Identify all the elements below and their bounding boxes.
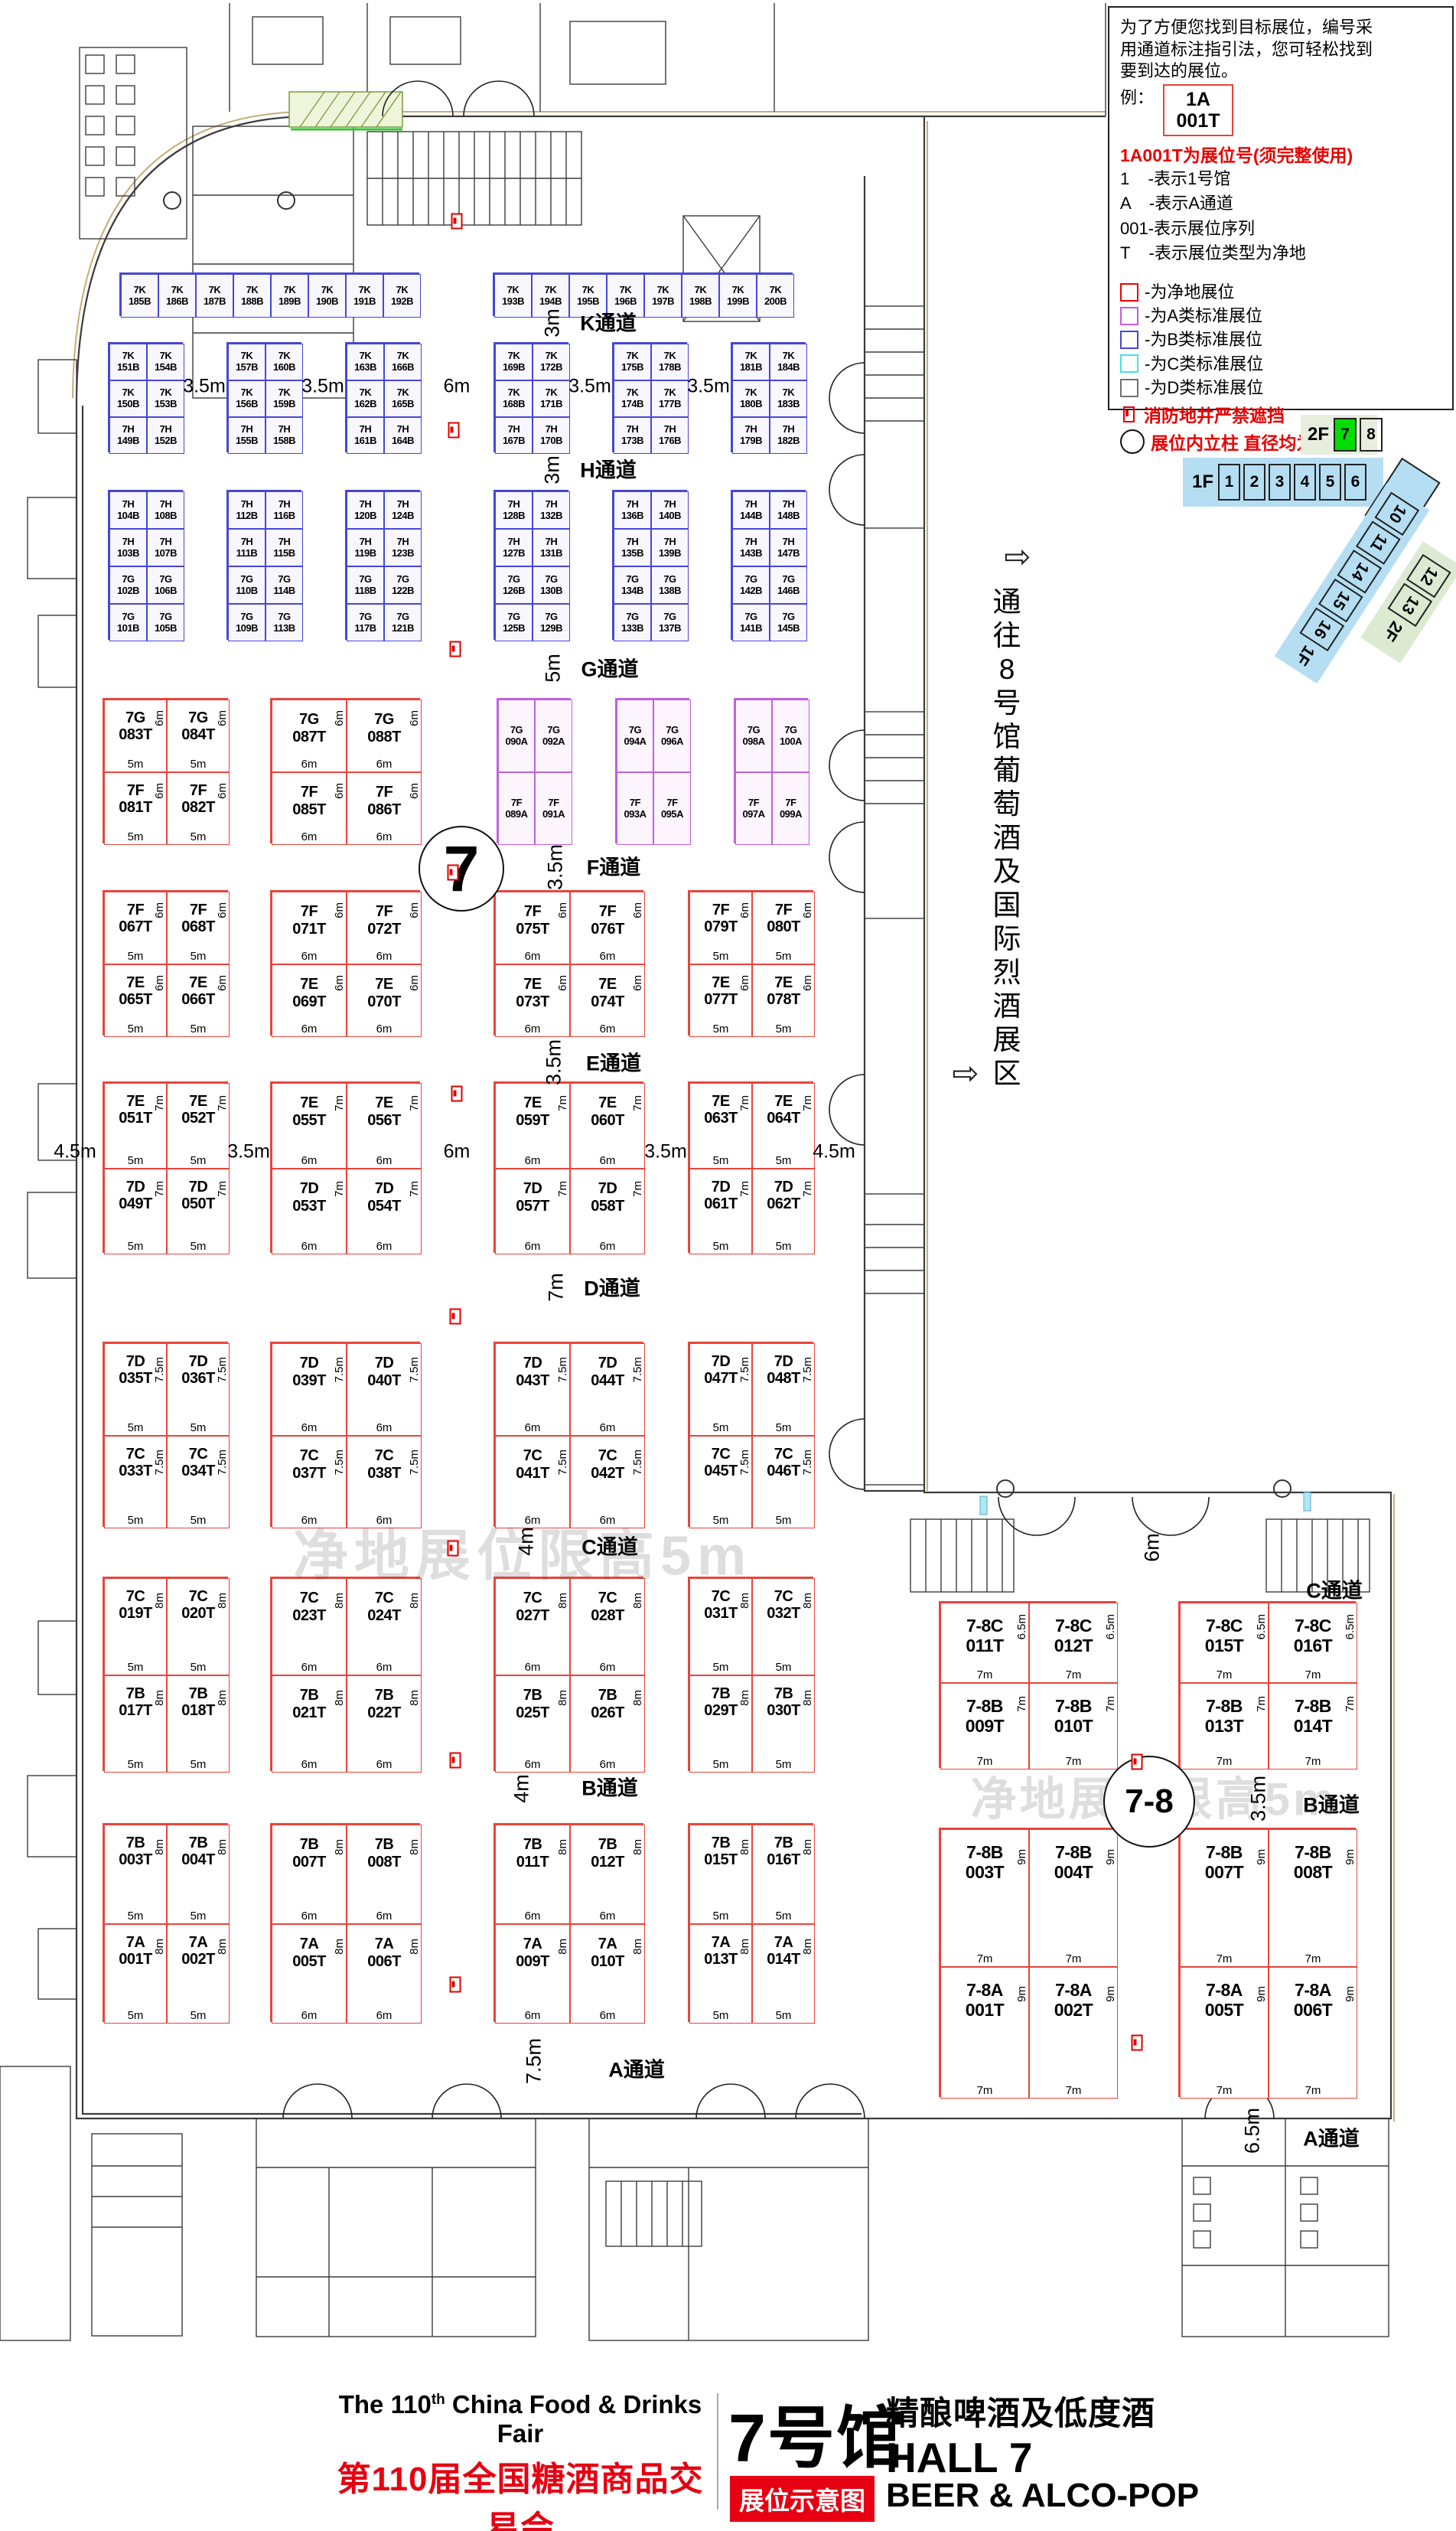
booth-block: 7K 157B7K 160B7K 156B7K 159B7H 155B7H 15…	[226, 342, 301, 452]
booth-id: 7C 042T	[591, 1447, 624, 1482]
booth: 7C 027T8m6m	[495, 1578, 570, 1675]
booth: 7B 017T8m5m	[104, 1675, 167, 1773]
gap-dimension-label: 3.5m	[568, 376, 611, 398]
booth-width-label: 5m	[168, 1421, 229, 1434]
booth-depth-label: 8m	[556, 1690, 569, 1706]
booth-block: 7G 087T6m6m7G 088T6m6m7F 085T6m6m7F 086T…	[270, 698, 420, 843]
booth-width-label: 5m	[690, 1023, 751, 1036]
booth: 7K 159B	[265, 380, 303, 417]
booth: 7K 193B	[494, 274, 532, 318]
booth-depth-label: 8m	[631, 1939, 644, 1955]
booth-id: 7H 161B	[354, 424, 376, 446]
booth-id: 7K 165B	[392, 387, 414, 409]
booth: 7B 015T8m5m	[689, 1825, 752, 1924]
booth-width-label: 5m	[690, 950, 751, 963]
booth-id: 7D 040T	[367, 1355, 401, 1389]
booth: 7G 084T6m5m	[167, 700, 230, 772]
booth-id: 7C 023T	[292, 1590, 326, 1624]
booth-id: 7A 010T	[591, 1936, 624, 1970]
booth: 7-8B 004T9m7m	[1029, 1829, 1118, 1967]
booth-id: 7K 159B	[273, 387, 295, 409]
booth-id: 7E 074T	[591, 976, 624, 1010]
booth-id: 7B 007T	[292, 1836, 326, 1871]
booth-id: 7H 158B	[273, 424, 295, 446]
booth: 7K 157B	[228, 344, 265, 380]
booth-depth-label: 6m	[216, 975, 229, 991]
booth: 7K 175B	[614, 344, 651, 380]
booth-id: 7D 057T	[516, 1180, 549, 1215]
booth-width-label: 6m	[347, 830, 421, 843]
booth: 7G 122B	[384, 566, 422, 604]
booth-width-label: 6m	[347, 1421, 421, 1434]
aisle-name-label: H通道	[580, 454, 637, 484]
booth-id: 7F 072T	[367, 903, 401, 938]
legend-definition-line: 001-表示展位序列	[1120, 217, 1441, 242]
booth-id: 7K 187B	[204, 285, 226, 307]
booth: 7K 191B	[346, 274, 383, 318]
booth-depth-label: 6m	[408, 902, 421, 918]
booth-width-label: 5m	[168, 1240, 229, 1253]
booth-depth-label: 8m	[333, 1690, 346, 1706]
booth-block: 7G 094A7G 096A7F 093A7F 095A	[615, 698, 689, 843]
booth-width-label: 5m	[168, 1154, 229, 1167]
booth: 7G 142B	[732, 566, 770, 604]
booth-id: 7-8A 005T	[1205, 1981, 1243, 2021]
booth-id: 7D 062T	[767, 1179, 800, 1213]
booth-depth-label: 6m	[333, 710, 346, 726]
booth: 7G 146B	[770, 566, 807, 604]
booth: 7A 006T8m6m	[347, 1924, 422, 2024]
booth: 7G 138B	[651, 566, 689, 604]
aisle-name-label: C通道	[1306, 1574, 1363, 1604]
minimap-hall-4: 4	[1294, 464, 1316, 501]
booth-width-label: 5m	[105, 1154, 166, 1167]
booth-width-label: 6m	[347, 2009, 421, 2022]
booth: 7H 176B	[651, 417, 689, 454]
pillar-icon	[1273, 1479, 1292, 1498]
booth: 7K 160B	[265, 344, 303, 380]
booth-depth-label: 7.5m	[333, 1450, 346, 1475]
booth-id: 7G 105B	[155, 612, 177, 634]
booth: 7F 085T6m6m	[272, 772, 347, 845]
booth-id: 7B 018T	[181, 1685, 215, 1720]
booth: 7G 141B	[732, 604, 770, 641]
corridor-note-char: 馆	[988, 720, 1026, 754]
booth-id: 7B 011T	[516, 1836, 549, 1871]
booth-id: 7H 124B	[392, 499, 414, 521]
booth-depth-label: 7.5m	[153, 1450, 166, 1475]
booth-block: 7H 104B7H 108B7H 103B7H 107B7G 102B7G 10…	[108, 490, 183, 640]
booth-width-label: 5m	[168, 1023, 229, 1036]
booth-width-label: 7m	[1181, 1668, 1268, 1681]
aisle-width-label: 3m	[541, 455, 565, 484]
booth-id: 7K 183B	[777, 387, 800, 409]
booth-id: 7-8B 007T	[1205, 1843, 1243, 1883]
booth: 7H 152B	[147, 417, 184, 454]
booth-id: 7G 113B	[273, 612, 295, 634]
booth: 7E 059T7m6m	[495, 1083, 570, 1169]
booth-id: 7K 186B	[166, 285, 188, 307]
booth-depth-label: 8m	[738, 1839, 751, 1855]
booth-depth-label: 7.5m	[631, 1450, 644, 1475]
booth-id: 7K 190B	[316, 285, 338, 307]
booth-depth-label: 8m	[556, 1939, 569, 1955]
booth: 7G 109B	[228, 604, 265, 641]
booth-id: 7-8C 011T	[966, 1616, 1003, 1656]
booth-width-label: 7m	[1269, 2084, 1357, 2097]
booth: 7K 200B	[757, 274, 794, 318]
booth-depth-label: 8m	[333, 1593, 346, 1609]
booth: 7G 125B	[495, 604, 533, 641]
booth: 7D 036T7.5m5m	[167, 1343, 230, 1436]
booth-id: 7H 104B	[117, 499, 139, 521]
booth: 7H 136B	[614, 491, 651, 529]
booth-depth-label: 7.5m	[556, 1357, 569, 1382]
booth-depth-label: 8m	[408, 1839, 421, 1855]
booth: 7A 010T8m6m	[570, 1924, 645, 2024]
booth-depth-label: 8m	[216, 1690, 229, 1706]
legend-booth-types: -为净地展位-为A类标准展位-为B类标准展位-为C类标准展位-为D类标准展位	[1120, 280, 1441, 400]
booth-type-swatch	[1120, 354, 1138, 373]
booth: 7E 078T6m5m	[752, 964, 815, 1037]
booth-width-label: 5m	[168, 1910, 229, 1923]
booth-depth-label: 8m	[631, 1690, 644, 1706]
booth-id: 7K 185B	[129, 285, 151, 307]
booth-depth-label: 7.5m	[738, 1450, 751, 1475]
booth-width-label: 5m	[690, 1154, 751, 1167]
booth: 7C 019T8m5m	[104, 1578, 167, 1675]
booth: 7B 016T8m5m	[752, 1825, 815, 1924]
booth-id: 7D 047T	[704, 1353, 738, 1388]
booth: 7K 177B	[651, 380, 689, 417]
booth: 7H 111B	[228, 529, 265, 566]
fire-well-icon	[448, 1541, 459, 1557]
booth-id: 7B 030T	[767, 1685, 800, 1720]
booth-type-swatch	[1120, 379, 1138, 397]
booth-width-label: 6m	[347, 758, 421, 771]
booth-block: 7K 169B7K 172B7K 168B7K 171B7H 167B7H 17…	[493, 342, 568, 452]
booth: 7H 179B	[732, 417, 770, 454]
booth-width-label: 6m	[347, 1910, 421, 1923]
booth: 7C 033T7.5m5m	[104, 1436, 167, 1528]
booth-id: 7C 038T	[367, 1447, 401, 1482]
aisle-width-label: 4m	[510, 1774, 534, 1803]
booth: 7E 055T7m6m	[272, 1083, 347, 1169]
booth: 7G 098A	[735, 700, 772, 772]
booth-id: 7K 174B	[621, 387, 643, 409]
booth: 7H 173B	[614, 417, 651, 454]
corridor-note-char: 及	[988, 855, 1026, 889]
booth-id: 7-8B 013T	[1205, 1697, 1243, 1737]
booth: 7K 171B	[533, 380, 570, 417]
booth-depth-label: 8m	[216, 1939, 229, 1955]
booth-type-label: -为净地展位	[1145, 280, 1234, 304]
booth-id: 7E 077T	[704, 974, 738, 1009]
booth-width-label: 6m	[571, 1421, 644, 1434]
booth-id: 7G 098A	[742, 725, 764, 747]
booth: 7G 113B	[265, 604, 303, 641]
booth-id: 7F 097A	[742, 797, 764, 820]
booth-id: 7B 003T	[119, 1835, 152, 1869]
aisle-name-label: B通道	[581, 1772, 638, 1802]
booth-depth-label: 7m	[216, 1181, 229, 1197]
corridor-note-char: 萄	[988, 788, 1026, 821]
booth-id: 7K 188B	[241, 285, 263, 307]
booth-id: 7G 094A	[624, 725, 646, 747]
booth-id: 7H 173B	[621, 424, 643, 446]
booth-width-label: 7m	[941, 1668, 1028, 1681]
booth-id: 7G 110B	[236, 574, 257, 596]
booth: 7D 035T7.5m5m	[104, 1343, 167, 1436]
booth-block: 7C 031T8m5m7C 032T8m5m7B 029T8m5m7B 030T…	[688, 1577, 813, 1771]
booth-id: 7C 024T	[367, 1590, 401, 1624]
aisle-width-label: 3m	[541, 308, 565, 338]
booth-block: 7D 035T7.5m5m7D 036T7.5m5m7C 033T7.5m5m7…	[103, 1342, 228, 1527]
booth-type-label: -为A类标准展位	[1145, 304, 1262, 328]
booth: 7-8C 015T6.5m7m	[1180, 1603, 1269, 1683]
booth-width-label: 6m	[272, 1661, 346, 1674]
booth-depth-label: 8m	[631, 1593, 644, 1609]
booth: 7H 132B	[533, 491, 570, 529]
booth-id: 7H 119B	[354, 537, 376, 559]
booth: 7H 148B	[770, 491, 807, 529]
booth: 7E 069T6m6m	[272, 964, 347, 1037]
booth: 7E 064T7m5m	[752, 1083, 815, 1169]
booth: 7G 100A	[772, 700, 809, 772]
booth-width-label: 5m	[168, 1661, 229, 1674]
booth-id: 7H 164B	[392, 424, 414, 446]
corridor-note-char: 展	[988, 1023, 1026, 1057]
booth: 7E 051T7m5m	[104, 1083, 167, 1169]
booth-block: 7K 151B7K 154B7K 150B7K 153B7H 149B7H 15…	[108, 342, 183, 452]
booth: 7C 032T8m5m	[752, 1578, 815, 1675]
booth: 7E 070T6m6m	[347, 964, 422, 1037]
booth-width-label: 6m	[347, 1661, 421, 1674]
booth-depth-label: 7.5m	[801, 1450, 814, 1475]
aisle-width-label: 5m	[542, 654, 565, 683]
booth: 7F 082T6m5m	[167, 772, 230, 845]
booth-id: 7C 033T	[119, 1446, 152, 1480]
booth-id: 7A 013T	[704, 1934, 738, 1968]
booth-id: 7K 177B	[659, 387, 681, 409]
booth: 7F 089A	[498, 772, 535, 845]
booth-width-label: 5m	[753, 2009, 814, 2022]
minimap-hall-2: 2	[1243, 464, 1265, 501]
legend-intro: 为了方便您找到目标展位，编号采 用通道标注指引法，您可轻松找到 要到达的展位。	[1120, 17, 1441, 83]
fire-well-icon	[450, 1753, 461, 1769]
gap-dimension-label: 4.5m	[813, 1141, 855, 1163]
booth-id: 7G 133B	[621, 612, 643, 634]
booth: 7E 063T7m5m	[689, 1083, 752, 1169]
booth: 7E 052T7m5m	[167, 1083, 230, 1169]
hall-locator-minimap: 2F 78 1F 123456 9 10111415161F 12132F	[1178, 413, 1455, 689]
legend-example-label: 例：	[1120, 84, 1154, 109]
booth-depth-label: 7m	[153, 1095, 166, 1111]
booth-id: 7F 075T	[516, 903, 549, 938]
booth: 7G 118B	[347, 566, 384, 604]
booth: 7D 061T7m5m	[689, 1169, 752, 1254]
booth-id: 7K 197B	[652, 285, 674, 307]
booth-id: 7K 171B	[540, 387, 562, 409]
booth: 7B 029T8m5m	[689, 1675, 752, 1773]
booth-id: 7B 026T	[591, 1687, 624, 1721]
booth-depth-label: 7m	[738, 1095, 751, 1111]
booth-depth-label: 6m	[333, 783, 346, 799]
booth-width-label: 6m	[272, 1758, 346, 1771]
booth-block: 7D 047T7.5m5m7D 048T7.5m5m7C 045T7.5m5m7…	[688, 1342, 813, 1527]
booth: 7K 178B	[651, 344, 689, 380]
legend-sample-booth: 1A 001T	[1163, 84, 1233, 136]
booth: 7G 121B	[384, 604, 422, 641]
booth-id: 7C 031T	[704, 1588, 738, 1623]
minimap-hall-7: 7	[1334, 418, 1357, 452]
booth: 7A 005T8m6m	[272, 1924, 347, 2024]
booth-id: 7A 009T	[516, 1936, 549, 1970]
booth-block: 7C 019T8m5m7C 020T8m5m7B 017T8m5m7B 018T…	[103, 1577, 228, 1771]
booth: 7C 046T7.5m5m	[752, 1436, 815, 1528]
booth: 7B 022T8m6m	[347, 1675, 422, 1773]
booth: 7F 081T6m5m	[104, 772, 167, 845]
booth-width-label: 5m	[753, 1910, 814, 1923]
booth-depth-label: 7m	[408, 1181, 421, 1197]
booth-id: 7H 179B	[740, 424, 762, 446]
booth-depth-label: 9m	[1255, 1849, 1268, 1865]
booth-width-label: 6m	[347, 1154, 421, 1167]
legend-sample-line1: 1A	[1166, 89, 1230, 110]
booth-id: 7G 142B	[740, 574, 762, 596]
booth-depth-label: 8m	[216, 1593, 229, 1609]
booth: 7-8B 009T7m7m	[940, 1683, 1029, 1769]
booth-id: 7-8B 004T	[1054, 1843, 1093, 1883]
booth-depth-label: 9m	[1104, 1986, 1117, 2002]
booth-width-label: 7m	[1030, 1952, 1117, 1965]
booth-depth-label: 8m	[408, 1939, 421, 1955]
booth: 7D 050T7m5m	[167, 1169, 230, 1254]
booth-width-label: 6m	[571, 1910, 644, 1923]
booth-id: 7E 078T	[767, 974, 800, 1009]
booth-id: 7E 069T	[292, 976, 326, 1010]
booth-block: 7F 067T6m5m7F 068T6m5m7E 065T6m5m7E 066T…	[103, 890, 228, 1036]
aisle-name-label: A通道	[1303, 2122, 1360, 2152]
booth: 7K 197B	[644, 274, 682, 318]
booth-block: 7D 043T7.5m6m7D 044T7.5m6m7C 041T7.5m6m7…	[493, 1342, 643, 1527]
fire-well-icon	[451, 1086, 463, 1102]
booth-depth-label: 7.5m	[801, 1357, 814, 1382]
booth-width-label: 6m	[571, 1240, 644, 1253]
booth-id: 7E 060T	[591, 1094, 624, 1129]
title-divider	[717, 2393, 718, 2510]
booth-id: 7F 089A	[505, 797, 527, 820]
booth: 7-8A 005T9m7m	[1180, 1967, 1269, 2099]
booth-id: 7C 032T	[767, 1588, 800, 1623]
booth: 7D 043T7.5m6m	[495, 1343, 570, 1436]
booth-id: 7H 123B	[392, 537, 414, 559]
booth-id: 7F 093A	[624, 797, 646, 820]
booth: 7D 048T7.5m5m	[752, 1343, 815, 1436]
fire-well-icon	[451, 214, 463, 230]
booth: 7-8A 002T9m7m	[1029, 1967, 1118, 2099]
booth-depth-label: 8m	[631, 1839, 644, 1855]
booth-depth-label: 7m	[153, 1181, 166, 1197]
booth-depth-label: 6m	[153, 902, 166, 918]
booth: 7K 151B	[109, 344, 147, 380]
booth-id: 7-8A 002T	[1054, 1981, 1093, 2021]
booth-depth-label: 7m	[801, 1181, 814, 1197]
booth-id: 7K 184B	[777, 351, 800, 373]
booth: 7F 075T6m6m	[495, 892, 570, 964]
booth: 7F 095A	[653, 772, 691, 845]
booth-id: 7K 154B	[155, 351, 177, 373]
booth-width-label: 5m	[105, 2009, 166, 2022]
minimap-1f-label: 1F	[1192, 471, 1213, 493]
booth-width-label: 5m	[690, 1240, 751, 1253]
booth: 7K 180B	[732, 380, 770, 417]
booth-depth-label: 8m	[153, 1839, 166, 1855]
booth-depth-label: 7m	[631, 1181, 644, 1197]
booth-id: 7-8B 009T	[966, 1697, 1004, 1737]
booth-id: 7B 008T	[367, 1836, 401, 1871]
booth-id: 7H 120B	[354, 499, 376, 521]
booth-id: 7E 052T	[181, 1093, 215, 1127]
booth-id: 7C 046T	[767, 1446, 800, 1480]
fire-well-icon	[450, 641, 461, 657]
booth-depth-label: 8m	[153, 1690, 166, 1706]
booth-depth-label: 6m	[738, 975, 751, 991]
booth-id: 7H 149B	[117, 424, 139, 446]
booth: 7A 002T8m5m	[167, 1924, 230, 2024]
booth-width-label: 6m	[496, 1240, 569, 1253]
booth-width-label: 7m	[941, 1952, 1028, 1965]
booth-depth-label: 8m	[801, 1939, 814, 1955]
legend-definition-line: T -表示展位类型为净地	[1120, 241, 1441, 266]
booth-width-label: 6m	[571, 1661, 644, 1674]
booth-id: 7D 050T	[181, 1179, 215, 1213]
booth-id: 7E 063T	[704, 1093, 738, 1127]
booth-width-label: 7m	[941, 2084, 1028, 2097]
booth: 7K 185B	[121, 274, 158, 318]
legend-type-row: -为B类标准展位	[1120, 328, 1441, 351]
booth-depth-label: 9m	[1104, 1849, 1117, 1865]
booth-depth-label: 6.5m	[1104, 1614, 1117, 1639]
booth-id: 7E 055T	[292, 1094, 326, 1129]
booth-id: 7B 004T	[181, 1835, 215, 1869]
fire-well-icon	[1132, 1754, 1143, 1770]
booth-id: 7G 118B	[354, 574, 376, 596]
booth: 7B 021T8m6m	[272, 1675, 347, 1773]
booth: 7G 106B	[147, 566, 184, 604]
booth-width-label: 5m	[105, 1758, 166, 1771]
booth-id: 7E 070T	[367, 976, 401, 1010]
booth-block: 7B 003T8m5m7B 004T8m5m7A 001T8m5m7A 002T…	[103, 1823, 228, 2022]
booth: 7G 092A	[535, 700, 572, 772]
booth: 7B 018T8m5m	[167, 1675, 230, 1773]
booth-width-label: 5m	[105, 950, 166, 963]
booth-type-label: -为B类标准展位	[1145, 328, 1262, 351]
aisle-name-label: D通道	[584, 1272, 640, 1302]
booth-type-swatch	[1120, 307, 1138, 325]
booth-depth-label: 7m	[738, 1181, 751, 1197]
booth-id: 7G 102B	[117, 574, 139, 596]
booth-block: 7H 112B7H 116B7H 111B7H 115B7G 110B7G 11…	[226, 490, 301, 640]
booth-id: 7H 176B	[659, 424, 681, 446]
legend-definition-line: A -表示A通道	[1120, 191, 1441, 217]
hall-name-en: HALL 7	[886, 2436, 1199, 2479]
booth: 7H 124B	[384, 491, 422, 529]
booth: 7-8B 007T9m7m	[1180, 1829, 1269, 1967]
minimap-hall-6: 6	[1344, 464, 1366, 501]
booth-id: 7F 082T	[181, 782, 215, 817]
category-en: BEER & ALCO-POP	[886, 2479, 1199, 2513]
